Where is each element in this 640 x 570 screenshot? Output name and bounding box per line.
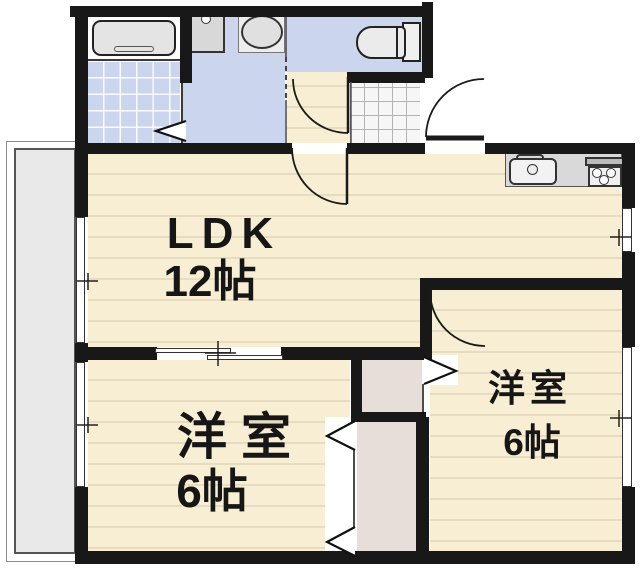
entrance-door-arc [426, 79, 484, 137]
toilet-door-arc [293, 79, 348, 133]
bedroomright-door-arc [430, 291, 485, 346]
bedroom-right-size: 6帖 [461, 424, 603, 461]
ldk-size: 12帖 [140, 260, 280, 304]
closet-lower-bifold-door-2 [327, 527, 355, 556]
closet-lower-bifold-door-1 [327, 421, 355, 450]
bathroom-bifold-door [156, 121, 186, 141]
sliding-door-tick [205, 341, 236, 366]
bedroom-right-label: 洋室 [459, 370, 601, 407]
hall-ldk-door-arc [292, 148, 347, 204]
lineart-overlay [0, 0, 640, 570]
window-tick-bedroomleft [77, 417, 98, 433]
bedroom-left-size: 6帖 [141, 468, 283, 514]
ldk-label: LDK [154, 212, 294, 256]
floorplan-canvas: LDK 12帖 洋室 6帖 洋室 6帖 [0, 0, 640, 570]
closet-upper-bifold-door [424, 357, 456, 384]
window-tick-ldk-right [610, 229, 632, 246]
window-tick-ldk-left [77, 273, 98, 290]
window-tick-bedroomright [610, 410, 632, 427]
bedroom-left-label: 洋室 [170, 412, 312, 462]
